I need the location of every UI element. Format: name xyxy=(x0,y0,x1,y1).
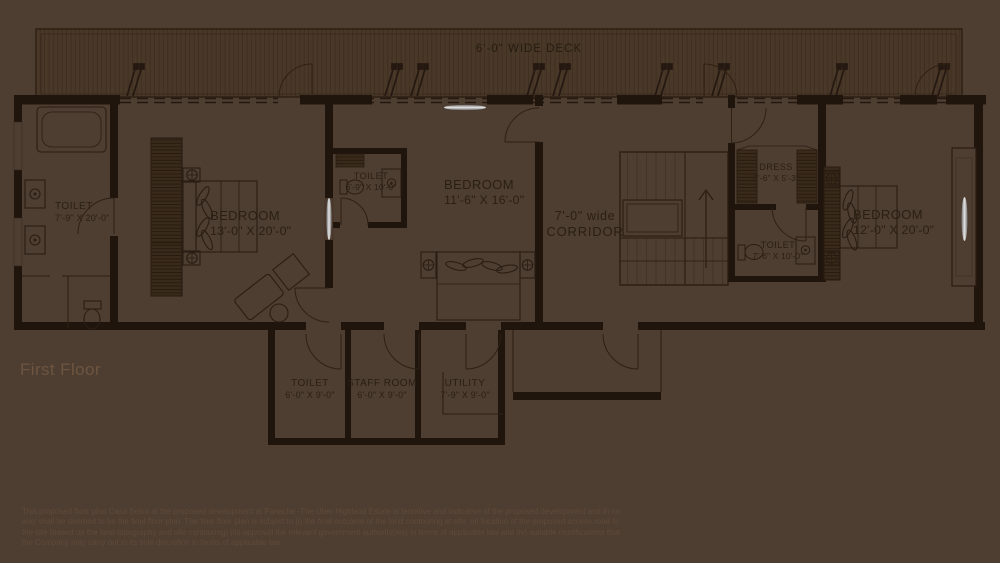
floor-plan-drawing xyxy=(0,0,1000,563)
window-icon xyxy=(952,148,976,286)
room-name: TOILET xyxy=(753,240,804,251)
room-label-toilet-middle: TOILET 6'-9" X 10'-0" xyxy=(346,171,397,192)
room-name: TOILET xyxy=(346,171,397,182)
room-name: BEDROOM xyxy=(853,207,934,223)
nightstand-icon xyxy=(183,168,200,182)
room-size: 6'-9" X 10'-0" xyxy=(346,182,397,192)
nightstand-icon xyxy=(520,252,535,278)
room-name: BEDROOM xyxy=(210,208,291,224)
disclaimer-line: the Company may carry out in its sole di… xyxy=(22,537,620,547)
room-name: TOILET xyxy=(285,378,334,390)
bedroom-middle-furniture xyxy=(421,252,535,320)
room-label-toilet-left: TOILET 7'-9" X 20'-0" xyxy=(55,201,110,224)
room-size: 13'-0" X 20'-0" xyxy=(210,224,291,239)
sink-icon xyxy=(25,226,45,254)
room-label-toilet-bottom: TOILET 6'-0" X 9'-0" xyxy=(285,378,334,401)
wardrobe-icon xyxy=(151,138,182,296)
floor-title: First Floor xyxy=(20,360,101,380)
room-label-bedroom-left: BEDROOM 13'-0" X 20'-0" xyxy=(210,208,291,238)
shower-icon xyxy=(336,154,364,167)
room-name: UTILITY xyxy=(440,378,489,390)
room-label-bedroom-right: BEDROOM 12'-0" X 20'-0" xyxy=(853,207,934,237)
disclaimer-line: the site (based on the land topography a… xyxy=(22,527,620,537)
wardrobe-icon xyxy=(797,150,817,203)
disclaimer-line: way shall be deemed to be the final floo… xyxy=(22,516,620,526)
room-size: 7'-9" X 9'-0" xyxy=(440,390,489,401)
room-name: DRESS xyxy=(753,162,799,173)
floor-plan-page: 6'-0" WIDE DECK TOILET 7'-9" X 20'-0" BE… xyxy=(0,0,1000,563)
sink-icon xyxy=(25,180,45,208)
room-label-staff-room: STAFF ROOM 6'-0" X 9'-0" xyxy=(347,378,417,401)
room-label-dress: DRESS 7'-6" X 5'-3" xyxy=(753,162,799,183)
room-name: BEDROOM xyxy=(444,177,524,193)
staircase xyxy=(620,152,728,285)
nightstand-icon xyxy=(421,252,436,278)
room-size: 12'-0" X 20'-0" xyxy=(853,223,934,238)
room-size: 6'-0" X 9'-0" xyxy=(285,390,334,401)
room-label-corridor: 7'-0" wide CORRIDOR xyxy=(546,209,623,240)
room-size: 6'-0" X 9'-0" xyxy=(347,390,417,401)
deck-label: 6'-0" WIDE DECK xyxy=(476,43,582,57)
room-name: TOILET xyxy=(55,201,110,213)
bed-icon xyxy=(437,252,520,320)
room-size: CORRIDOR xyxy=(546,224,623,240)
disclaimer: This proposed floor plan Casa Selva at t… xyxy=(22,506,620,548)
window-icon xyxy=(325,198,333,240)
disclaimer-line: This proposed floor plan Casa Selva at t… xyxy=(22,506,620,516)
nightstand-icon xyxy=(183,251,200,265)
side-table-icon xyxy=(270,304,288,322)
room-label-bedroom-middle: BEDROOM 11'-6" X 16'-0" xyxy=(444,177,524,207)
room-size: 7'-9" X 20'-0" xyxy=(55,213,110,224)
room-size: 7'-6" X 10'-0" xyxy=(753,251,804,261)
room-size: 7'-6" X 5'-3" xyxy=(753,173,799,183)
room-label-utility: UTILITY 7'-9" X 9'-0" xyxy=(440,378,489,401)
room-size: 11'-6" X 16'-0" xyxy=(444,193,524,208)
room-name: 7'-0" wide xyxy=(546,209,623,224)
room-label-toilet-right: TOILET 7'-6" X 10'-0" xyxy=(753,240,804,261)
window-icon xyxy=(444,105,486,110)
bathtub-icon xyxy=(37,107,106,152)
deck xyxy=(36,29,962,97)
room-name: STAFF ROOM xyxy=(347,378,417,390)
